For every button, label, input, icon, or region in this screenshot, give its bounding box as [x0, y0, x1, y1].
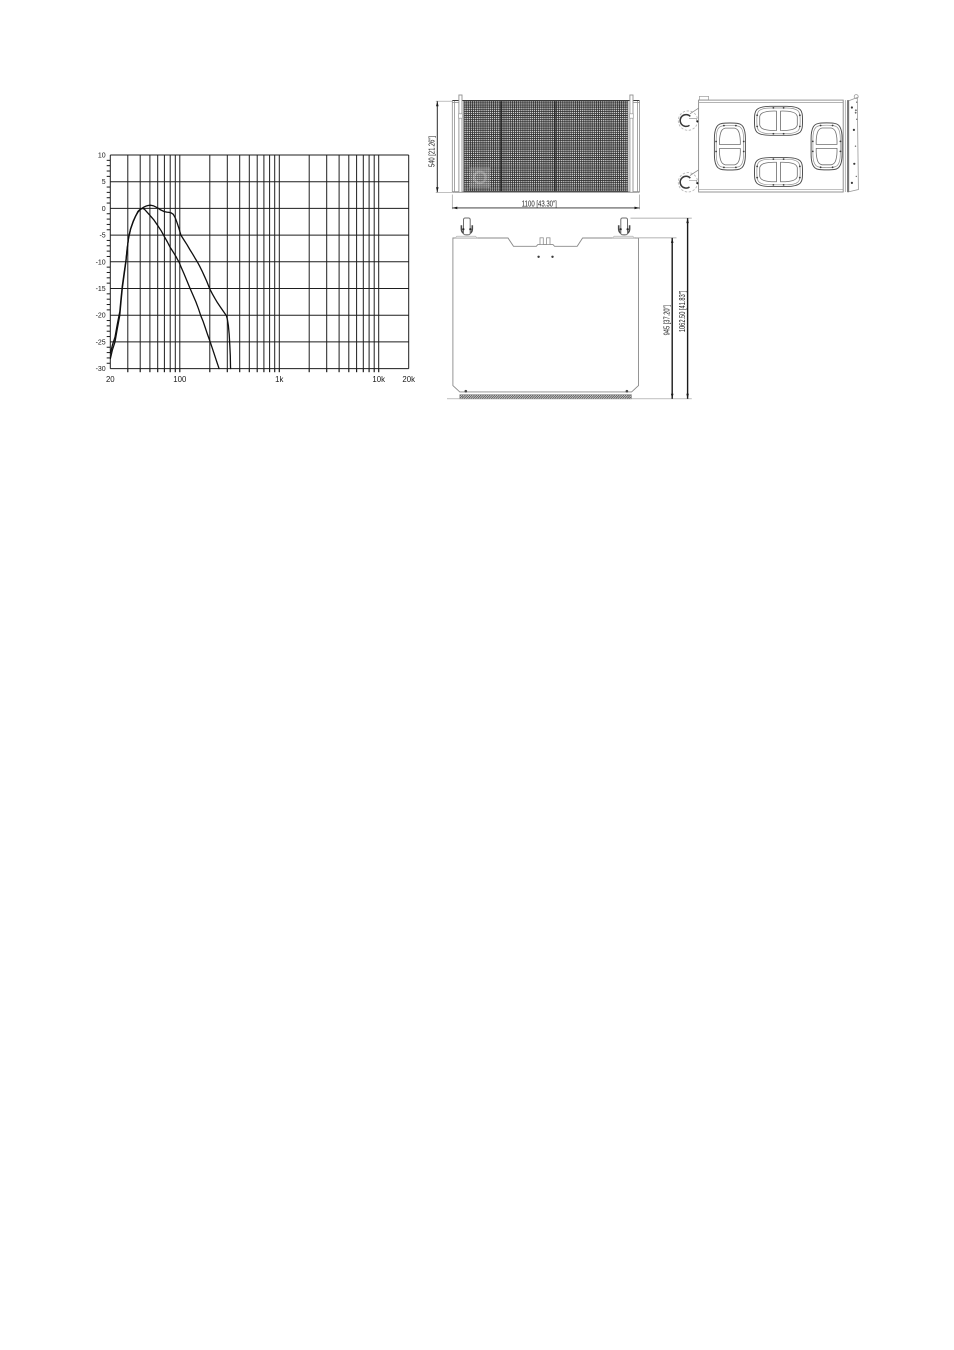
- svg-text:-10: -10: [96, 259, 106, 266]
- svg-text:-20: -20: [96, 313, 106, 320]
- svg-text:20: 20: [106, 375, 115, 384]
- svg-text:-25: -25: [96, 339, 106, 346]
- svg-text:10k: 10k: [372, 375, 385, 384]
- svg-text:945 [37.20"]: 945 [37.20"]: [662, 305, 672, 336]
- svg-text:1062.50 [41.83"]: 1062.50 [41.83"]: [677, 291, 687, 333]
- svg-text:-5: -5: [99, 233, 105, 240]
- svg-text:1100 [43.30"]: 1100 [43.30"]: [522, 198, 557, 208]
- svg-text:5: 5: [102, 179, 106, 186]
- svg-text:1k: 1k: [275, 375, 283, 384]
- svg-text:10: 10: [98, 153, 106, 160]
- svg-text:-30: -30: [96, 366, 106, 373]
- svg-text:540 [21.26"]: 540 [21.26"]: [426, 136, 436, 167]
- svg-text:100: 100: [173, 375, 187, 384]
- svg-text:-15: -15: [96, 286, 106, 293]
- svg-text:0: 0: [102, 206, 106, 213]
- svg-text:20k: 20k: [402, 375, 415, 384]
